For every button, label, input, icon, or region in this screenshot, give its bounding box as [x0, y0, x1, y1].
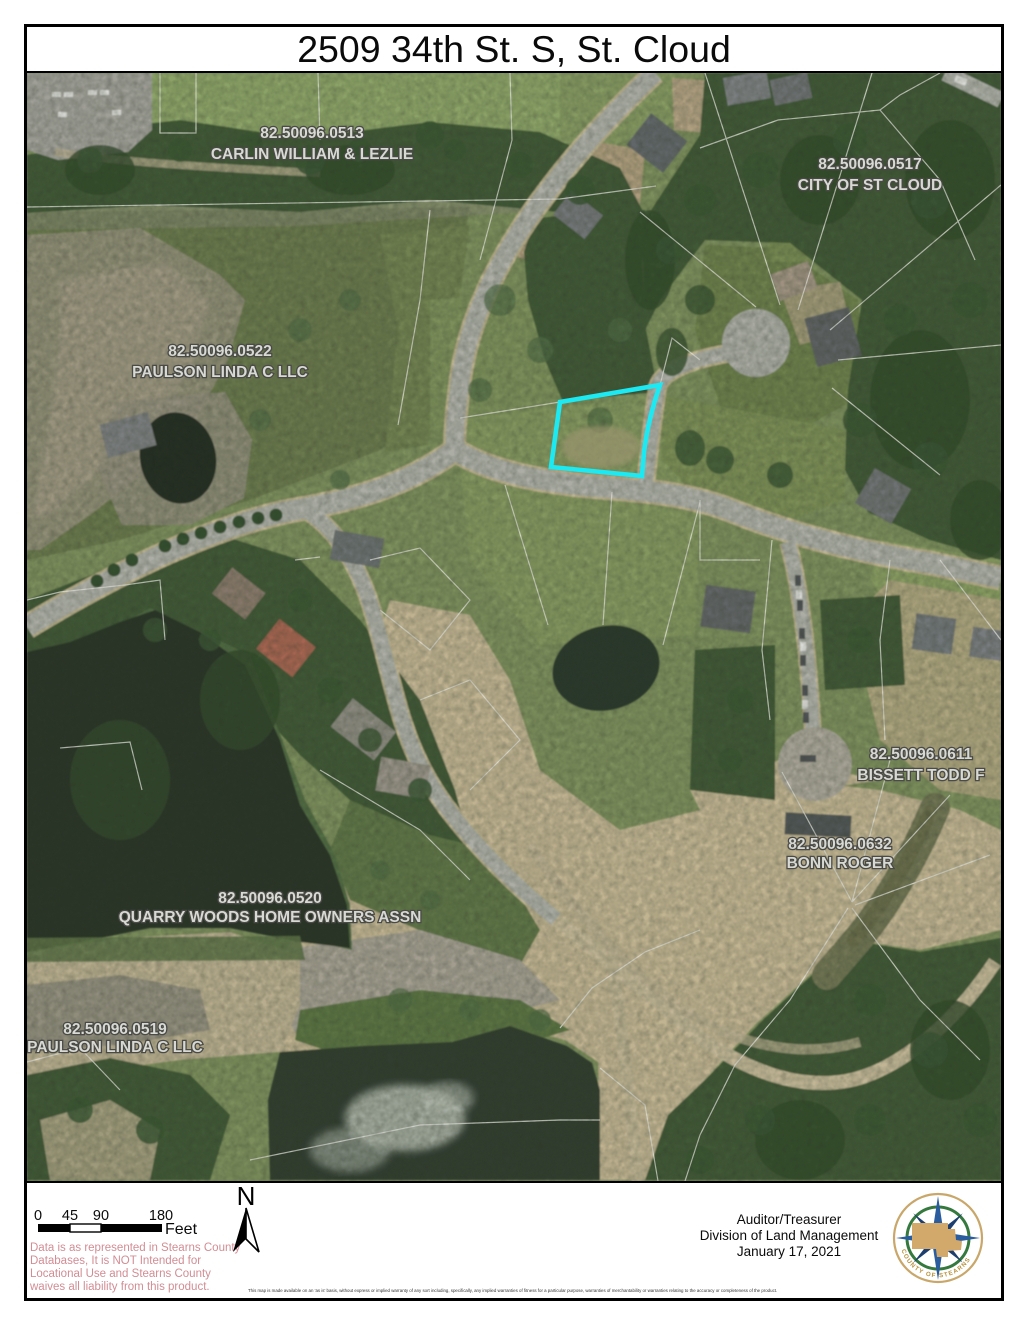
- svg-text:82.50096.0611: 82.50096.0611: [870, 746, 973, 763]
- svg-text:82.50096.0513: 82.50096.0513: [260, 125, 364, 142]
- svg-text:Auditor/Treasurer: Auditor/Treasurer: [737, 1212, 842, 1227]
- svg-text:Data is as represented in Stea: Data is as represented in Stearns County: [30, 1242, 241, 1254]
- svg-text:82.50096.0520: 82.50096.0520: [218, 890, 321, 907]
- svg-text:PAULSON LINDA C LLC: PAULSON LINDA C LLC: [132, 364, 308, 381]
- svg-text:waives all liability from this: waives all liability from this product.: [29, 1281, 210, 1293]
- svg-text:N: N: [237, 1183, 256, 1211]
- svg-text:QUARRY WOODS HOME OWNERS ASSN: QUARRY WOODS HOME OWNERS ASSN: [119, 909, 422, 926]
- svg-text:Databases, It is NOT Intended: Databases, It is NOT Intended for: [30, 1255, 201, 1267]
- svg-text:Division of Land Management: Division of Land Management: [700, 1228, 879, 1243]
- svg-text:90: 90: [93, 1208, 109, 1224]
- svg-text:82.50096.0519: 82.50096.0519: [63, 1021, 167, 1038]
- svg-text:Feet: Feet: [165, 1221, 198, 1238]
- svg-text:82.50096.0522: 82.50096.0522: [168, 343, 271, 360]
- svg-text:0: 0: [34, 1208, 42, 1224]
- svg-text:Locational Use and Stearns Cou: Locational Use and Stearns County: [30, 1268, 211, 1280]
- svg-text:BISSETT TODD F: BISSETT TODD F: [857, 767, 984, 784]
- svg-text:PAULSON LINDA C LLC: PAULSON LINDA C LLC: [27, 1039, 203, 1056]
- svg-text:CARLIN WILLIAM & LEZLIE: CARLIN WILLIAM & LEZLIE: [211, 146, 413, 163]
- svg-text:January 17, 2021: January 17, 2021: [737, 1244, 841, 1259]
- svg-text:82.50096.0517: 82.50096.0517: [818, 156, 921, 173]
- svg-text:45: 45: [62, 1208, 78, 1224]
- svg-text:82.50096.0632: 82.50096.0632: [788, 836, 891, 853]
- svg-text:This map is made available on: This map is made available on an 'as is'…: [248, 1288, 777, 1293]
- svg-text:CITY OF ST CLOUD: CITY OF ST CLOUD: [798, 177, 942, 194]
- svg-text:BONN ROGER: BONN ROGER: [787, 855, 894, 872]
